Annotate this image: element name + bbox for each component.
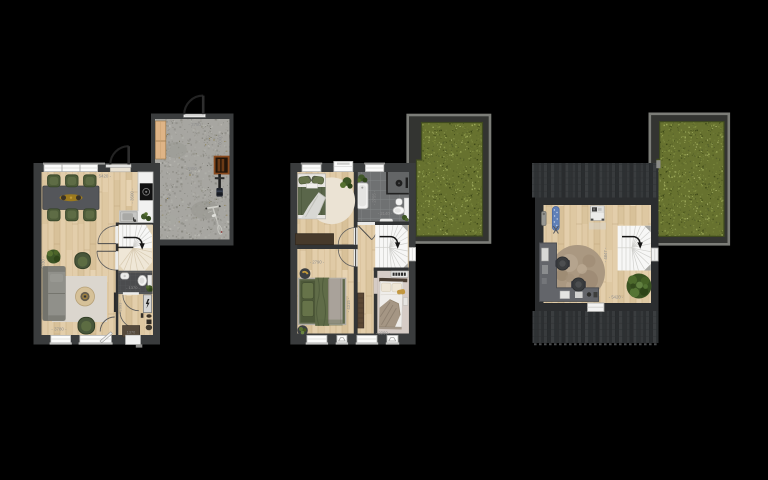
svg-text:- 5420 -: - 5420 - [96, 174, 112, 179]
svg-text:- 2140 -: - 2140 - [378, 211, 393, 216]
svg-text:- 3450 -: - 3450 - [184, 166, 200, 171]
svg-text:- 5420 -: - 5420 - [609, 294, 624, 299]
svg-text:- 3500 -: - 3500 - [130, 188, 135, 204]
svg-text:- 4315 -: - 4315 - [346, 297, 351, 312]
svg-text:- 2755 -: - 2755 - [371, 190, 376, 205]
svg-text:- 2093 -: - 2093 - [118, 299, 123, 313]
svg-text:1370: 1370 [127, 330, 135, 334]
svg-text:- 4847 -: - 4847 - [603, 247, 608, 262]
svg-text:- 3750 -: - 3750 - [188, 122, 204, 127]
svg-text:- 2360 -: - 2360 - [376, 330, 391, 335]
svg-text:- 1370 -: - 1370 - [126, 285, 140, 290]
svg-text:- 6000 -: - 6000 - [218, 132, 223, 148]
svg-text:- 3780 -: - 3780 - [51, 327, 67, 332]
svg-text:- 2790 -: - 2790 - [310, 259, 325, 264]
